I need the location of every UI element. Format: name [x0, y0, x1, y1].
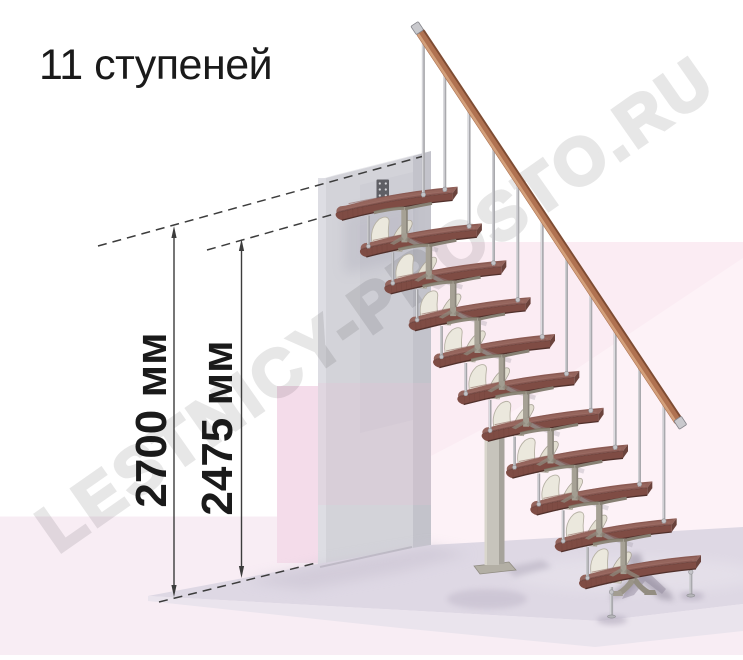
svg-text:11 ступеней: 11 ступеней [39, 41, 272, 89]
svg-text:2700 мм: 2700 мм [127, 332, 176, 507]
svg-text:2475 мм: 2475 мм [193, 340, 242, 515]
